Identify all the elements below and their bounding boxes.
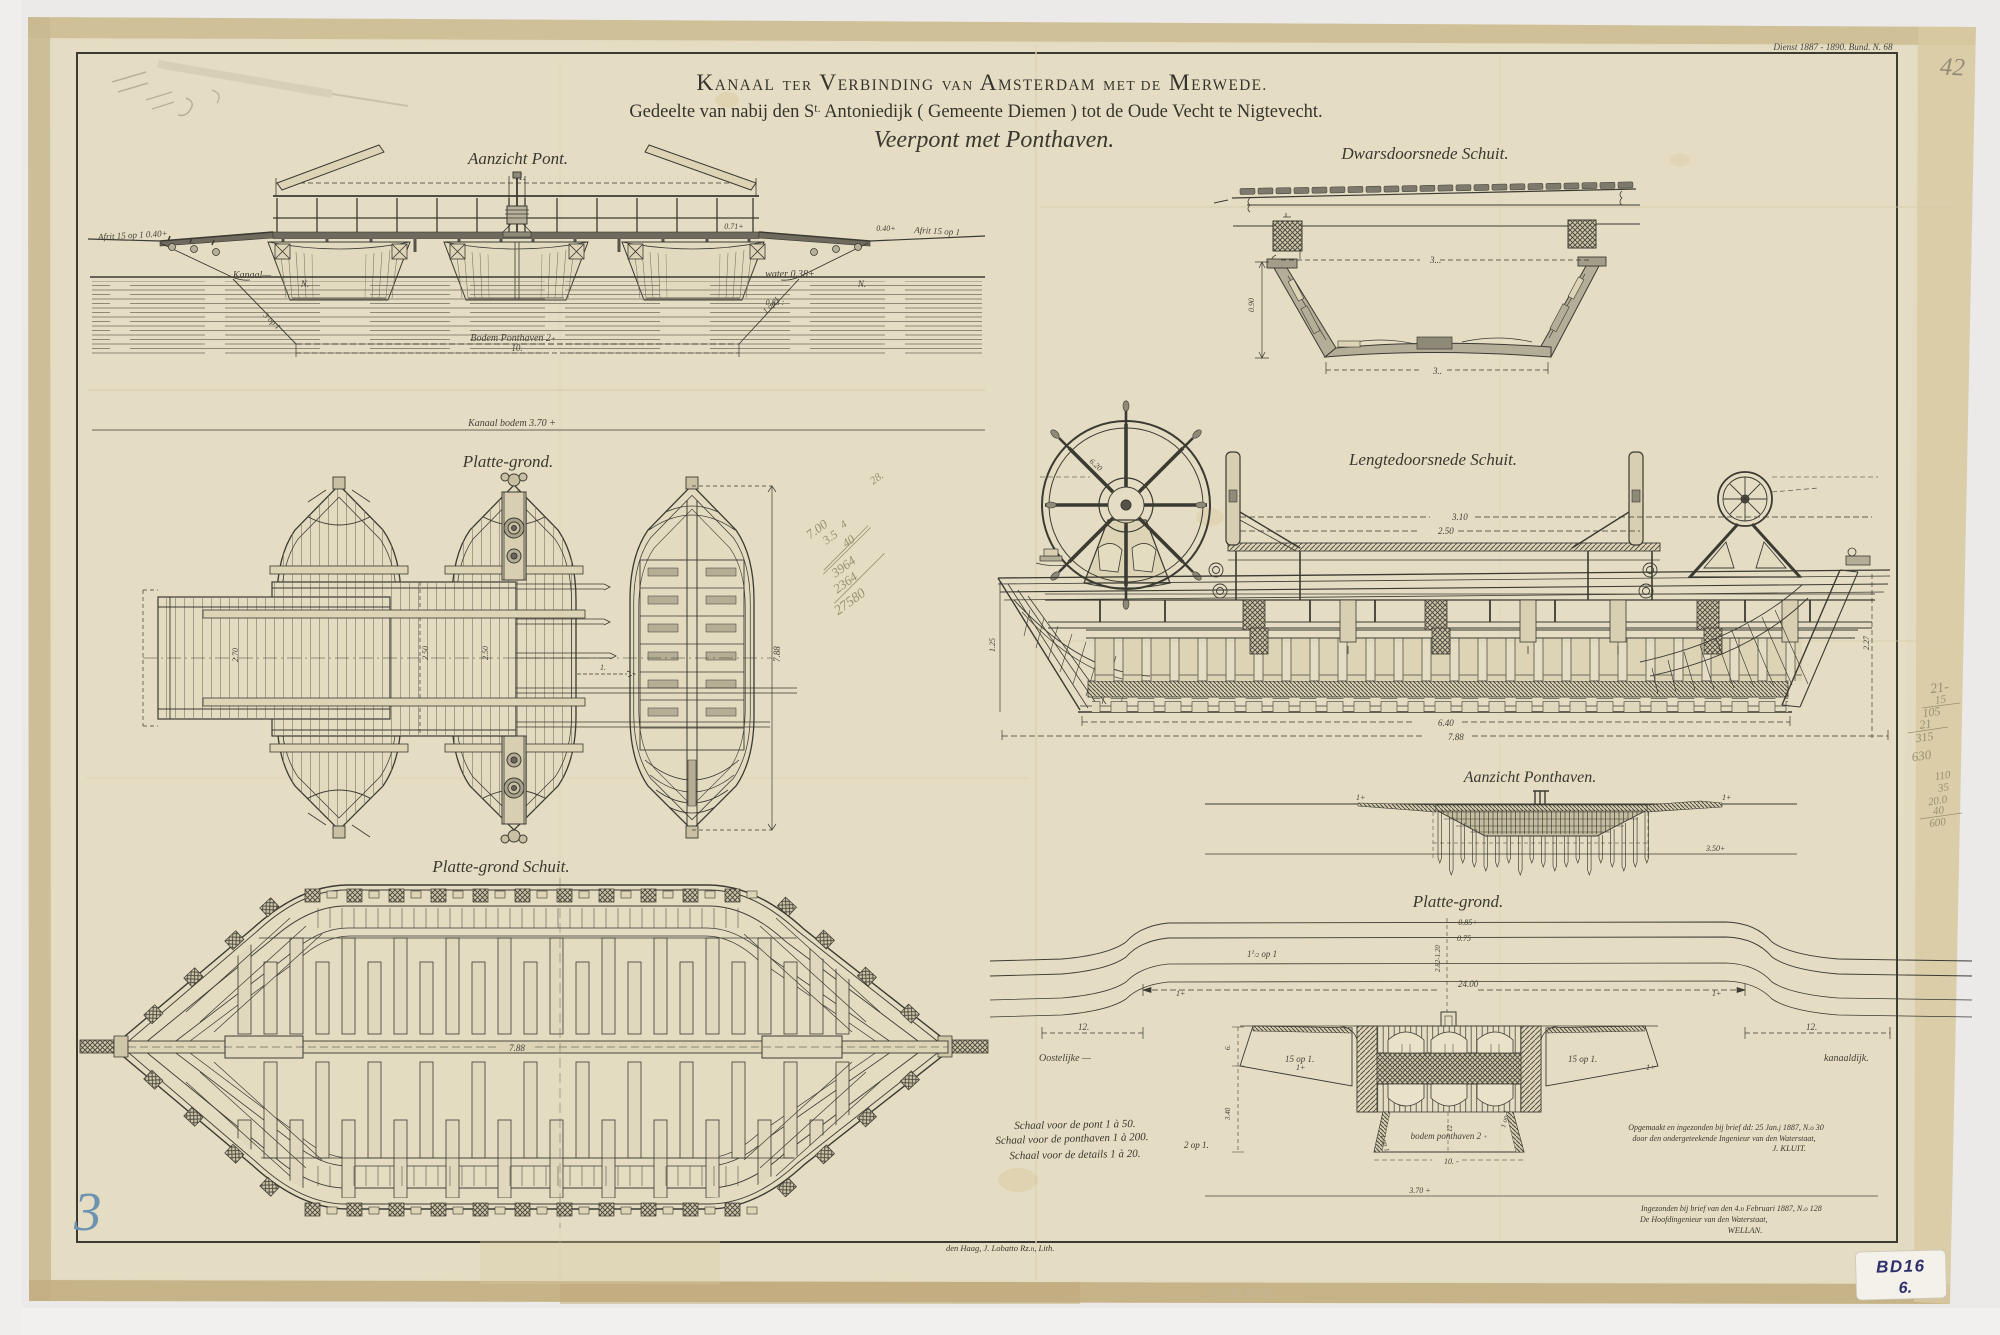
svg-text:0.71+: 0.71+ — [724, 222, 743, 231]
svg-text:3.40: 3.40 — [1224, 1107, 1232, 1121]
svg-text:Platte-grond.: Platte-grond. — [462, 452, 554, 471]
svg-text:3: 3 — [73, 1181, 102, 1242]
svg-text:3.70 +: 3.70 + — [1408, 1186, 1430, 1195]
svg-text:10.: 10. — [511, 343, 522, 353]
svg-text:2.82-1.20: 2.82-1.20 — [1434, 945, 1442, 972]
svg-text:1.25: 1.25 — [988, 638, 997, 652]
svg-text:Opgemaakt en ingezonden bij br: Opgemaakt en ingezonden bij brief dd: 25… — [1628, 1123, 1823, 1132]
svg-text:0.83 :: 0.83 : — [766, 298, 785, 307]
svg-text:630: 630 — [1911, 747, 1933, 765]
svg-text:0.40+: 0.40+ — [876, 224, 895, 233]
svg-text:Kanaal bodem 3.70 +: Kanaal bodem 3.70 + — [467, 418, 556, 429]
svg-text:kanaaldijk.: kanaaldijk. — [1824, 1053, 1869, 1064]
svg-text:12.: 12. — [1078, 1022, 1089, 1032]
svg-text:600: 600 — [1929, 816, 1948, 830]
svg-text:Schaal voor de pont 1 à 50.: Schaal voor de pont 1 à 50. — [1014, 1118, 1135, 1132]
svg-text:KANAAL TER VERBINDING VAN AMST: KANAAL TER VERBINDING VAN AMSTERDAM MET … — [696, 70, 1267, 96]
svg-text:7.88: 7.88 — [509, 1043, 525, 1053]
svg-text:BD16: BD16 — [1876, 1256, 1926, 1276]
svg-text:35: 35 — [1936, 781, 1950, 795]
svg-text:Schaal voor de details 1 à 20.: Schaal voor de details 1 à 20. — [1009, 1148, 1140, 1162]
svg-text:2.27: 2.27 — [1862, 635, 1871, 650]
svg-text:1+: 1+ — [1722, 793, 1731, 802]
svg-text:3...: 3... — [1429, 255, 1441, 265]
svg-text:N.: N. — [857, 279, 866, 289]
svg-text:110: 110 — [1934, 769, 1952, 783]
svg-text:Aanzicht Ponthaven.: Aanzicht Ponthaven. — [1463, 769, 1596, 786]
svg-text:1+: 1+ — [1176, 989, 1185, 998]
svg-text:Dienst 1887 - 1890. Bund. N. 6: Dienst 1887 - 1890. Bund. N. 68 — [1772, 42, 1893, 52]
svg-text:1+: 1+ — [1356, 793, 1365, 802]
svg-text:Ingezonden bij brief van den: Ingezonden bij brief van den 4.n Februar… — [1640, 1204, 1822, 1213]
svg-text:3..: 3.. — [1432, 366, 1442, 376]
svg-text:12: 12 — [1446, 1125, 1454, 1133]
svg-text:1+: 1+ — [1646, 1063, 1655, 1072]
svg-text:1+: 1+ — [1712, 989, 1721, 998]
svg-text:Oostelijke —: Oostelijke — — [1039, 1053, 1091, 1064]
svg-text:Dwarsdoorsnede Schuit.: Dwarsdoorsnede Schuit. — [1340, 144, 1508, 163]
svg-text:water 0.38+: water 0.38+ — [765, 269, 815, 280]
svg-text:De Hoofdingenieur van den Wate: De Hoofdingenieur van den Waterstaat, — [1639, 1215, 1767, 1224]
svg-text:6.: 6. — [1898, 1280, 1912, 1297]
svg-text:2.50: 2.50 — [1438, 526, 1454, 536]
svg-text:1.: 1. — [600, 663, 606, 672]
svg-text:Kanaal—: Kanaal— — [232, 270, 271, 281]
svg-text:6.: 6. — [1224, 1045, 1232, 1051]
svg-text:6.40: 6.40 — [1438, 718, 1454, 728]
svg-text:Lengtedoorsnede Schuit.: Lengtedoorsnede Schuit. — [1348, 450, 1517, 469]
svg-text:315: 315 — [1914, 729, 1935, 746]
svg-text:door den ondergeteekende Ingen: door den ondergeteekende Ingenieur van d… — [1632, 1134, 1815, 1143]
svg-text:0.90: 0.90 — [1247, 298, 1256, 312]
svg-text:12.: 12. — [1806, 1022, 1817, 1032]
svg-text:7.88: 7.88 — [772, 646, 782, 662]
svg-text:1+: 1+ — [1296, 1063, 1305, 1072]
svg-text:24.00: 24.00 — [1458, 979, 1479, 989]
svg-text:2.70: 2.70 — [231, 648, 240, 662]
svg-text:Gedeelte van nabij den St. Ant: Gedeelte van nabij den St. Antoniedijk (… — [629, 101, 1322, 122]
svg-text:42: 42 — [1939, 53, 1965, 81]
svg-text:7.88: 7.88 — [1448, 732, 1464, 742]
svg-text:den Haag, J. Lobatto Rz.n, Lit: den Haag, J. Lobatto Rz.n, Lith. — [946, 1243, 1054, 1253]
svg-text:3.10: 3.10 — [1451, 512, 1468, 522]
svg-text:0.75: 0.75 — [1457, 934, 1471, 943]
svg-text:2 op 1.: 2 op 1. — [1184, 1140, 1209, 1150]
svg-text:J. KLUIT.: J. KLUIT. — [1772, 1143, 1806, 1153]
svg-text:Platte-grond.: Platte-grond. — [1412, 892, 1504, 911]
svg-text:3.50+: 3.50+ — [1705, 844, 1725, 853]
svg-text:0.85+: 0.85+ — [1458, 918, 1477, 927]
svg-text:J. 3101 (634): J. 3101 (634) — [1208, 1285, 1272, 1299]
svg-text:N.: N. — [300, 279, 309, 289]
svg-text:Platte-grond Schuit.: Platte-grond Schuit. — [431, 857, 569, 876]
svg-text:Aanzicht Pont.: Aanzicht Pont. — [467, 149, 568, 168]
svg-text:Veerpont met Ponthaven.: Veerpont met Ponthaven. — [874, 127, 1115, 153]
svg-text:WELLAN.: WELLAN. — [1728, 1225, 1763, 1235]
svg-text:10. -: 10. - — [1444, 1157, 1459, 1166]
svg-text:15 op 1.: 15 op 1. — [1568, 1054, 1597, 1064]
